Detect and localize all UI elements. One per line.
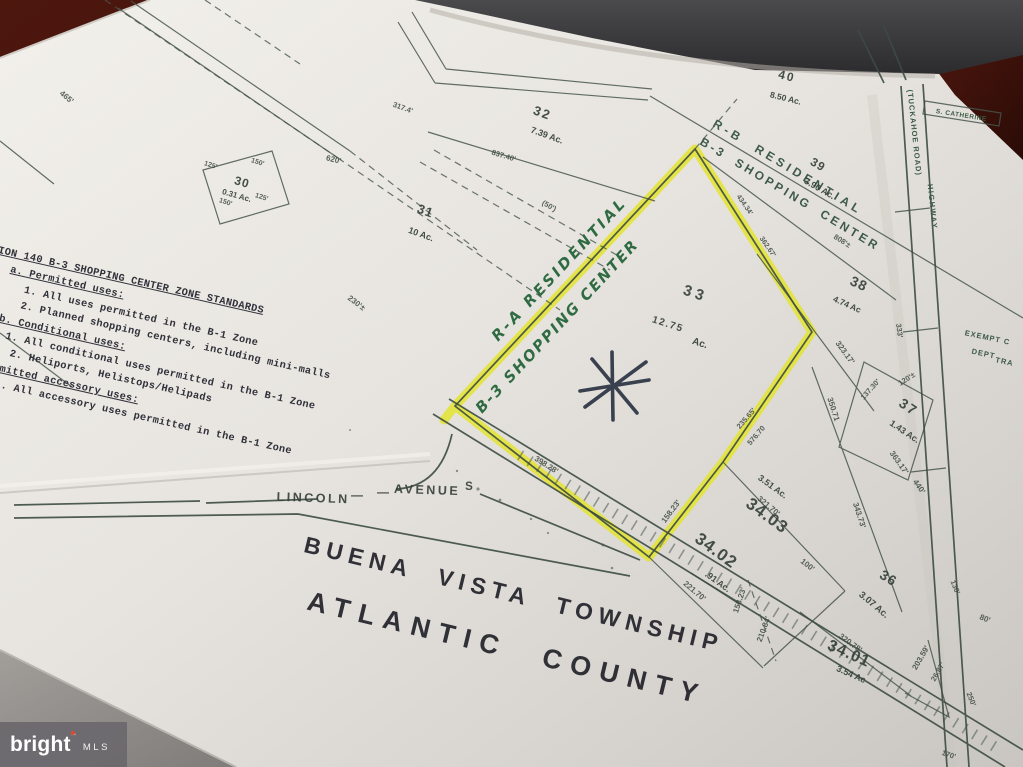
dash-glyph: — [351,488,363,502]
tax-map-photo: { "watermark": {"brand": "bright", "tm":… [0,0,1023,767]
road-label-avenue-suffix: S [465,481,473,493]
brightmls-watermark: bright™ MLS [0,722,127,767]
brightmls-brand-text: bright [10,733,71,756]
road-label-lincoln: LINCOLN [276,490,350,507]
dash-glyph: — [377,485,389,499]
brightmls-logo-dot [71,731,75,735]
brightmls-org-text: MLS [83,742,110,753]
brightmls-logo: bright™ [10,733,76,757]
road-label-avenue: AVENUE [394,482,461,498]
